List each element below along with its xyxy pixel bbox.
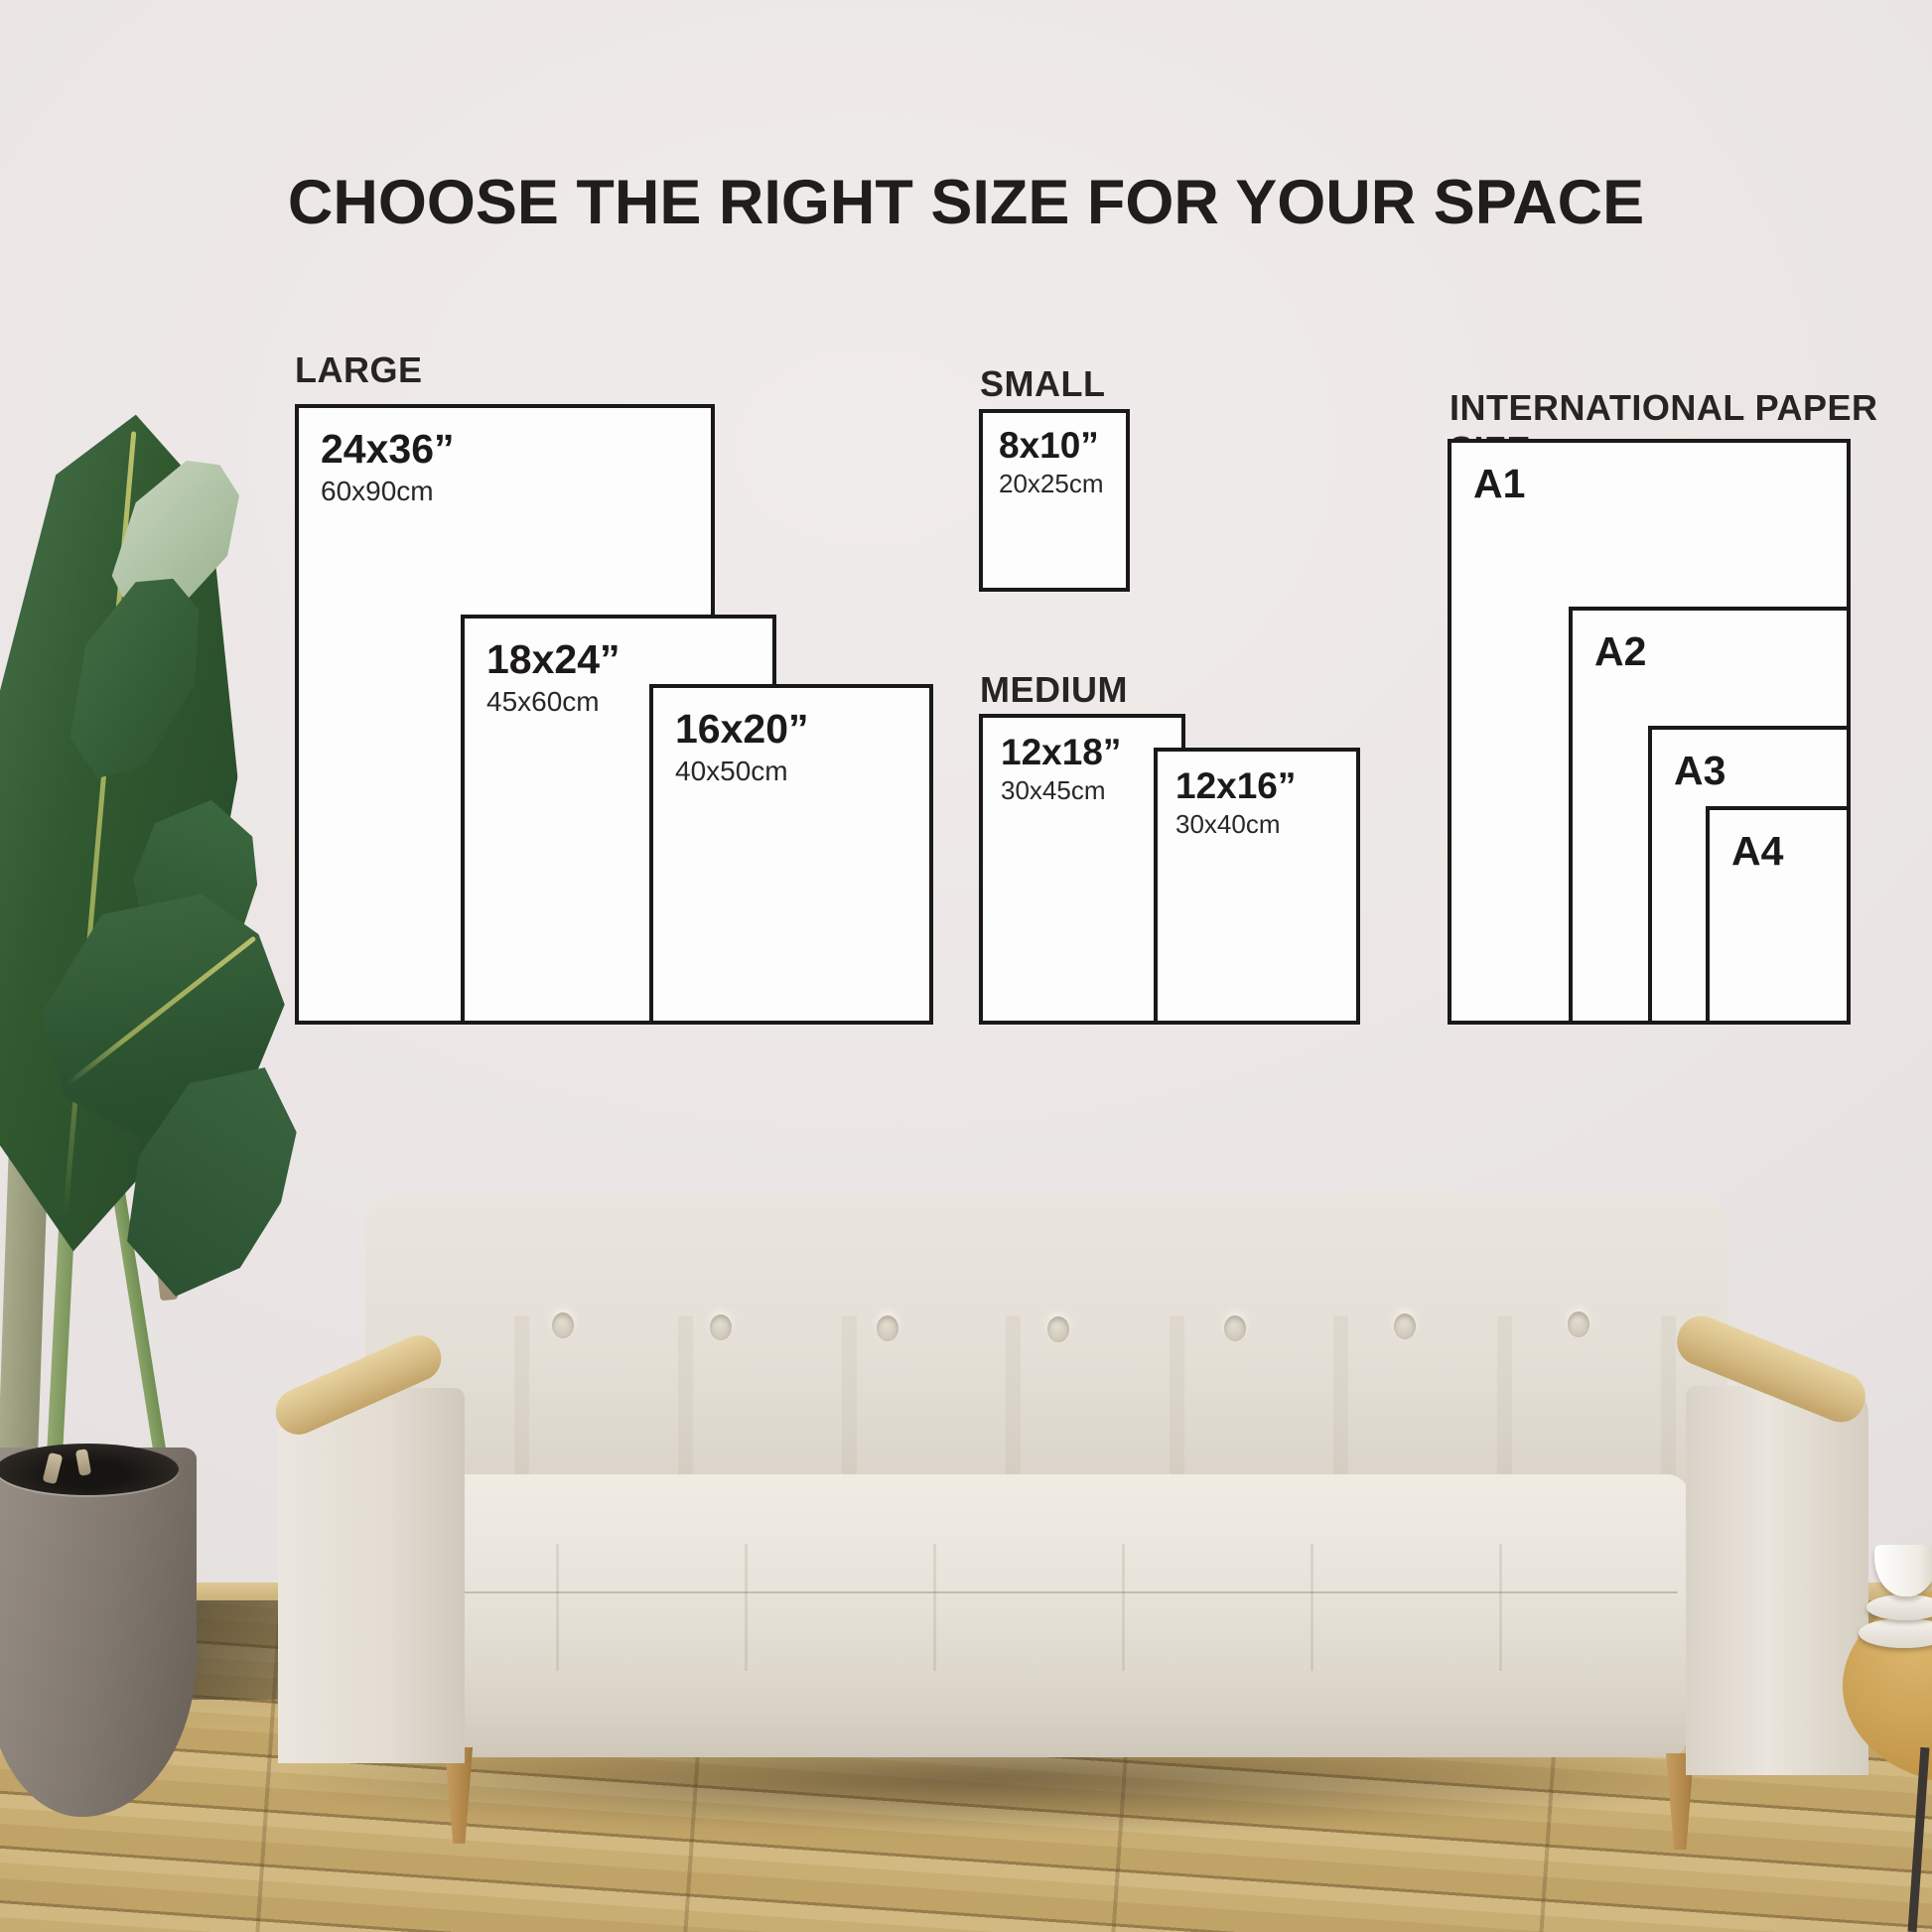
size-inches: A4 [1731,826,1825,877]
plant-pot [0,1448,197,1817]
tufting-button [1047,1316,1069,1342]
size-inches: A1 [1473,459,1825,509]
size-cm: 20x25cm [999,469,1110,499]
size-box-a4: A4 [1706,806,1851,1025]
size-cm: 30x40cm [1175,809,1338,840]
size-inches: A3 [1674,746,1825,796]
size-cm: 60x90cm [321,475,689,508]
size-inches: 12x16” [1175,763,1338,809]
sofa-backrest [365,1196,1727,1494]
page-title: CHOOSE THE RIGHT SIZE FOR YOUR SPACE [0,167,1932,238]
tufting-button [877,1315,898,1341]
size-cm: 40x50cm [675,755,907,788]
size-inches: 18x24” [486,634,751,685]
size-inches: 8x10” [999,423,1110,469]
group-label-small: SMALL [980,363,1105,405]
size-box-12x16: 12x16” 30x40cm [1154,748,1360,1025]
sofa-seat-cushion [349,1474,1696,1691]
tufting-button [552,1312,574,1338]
size-cm: 30x45cm [1001,775,1164,806]
group-label-medium: MEDIUM [980,669,1128,711]
size-inches: 12x18” [1001,730,1164,775]
size-inches: 16x20” [675,704,907,755]
tufting-button [1568,1311,1589,1337]
sofa-armrest-right [1686,1386,1868,1775]
group-label-large: LARGE [295,349,423,391]
sofa-armrest-left [278,1388,465,1763]
size-guide-image: CHOOSE THE RIGHT SIZE FOR YOUR SPACE LAR… [0,0,1932,1932]
size-inches: A2 [1594,626,1825,677]
size-inches: 24x36” [321,424,689,475]
tufting-button [710,1314,732,1340]
tufting-button [1394,1313,1416,1339]
size-box-16x20: 16x20” 40x50cm [649,684,933,1025]
tufting-button [1224,1315,1246,1341]
size-box-8x10: 8x10” 20x25cm [979,409,1130,592]
